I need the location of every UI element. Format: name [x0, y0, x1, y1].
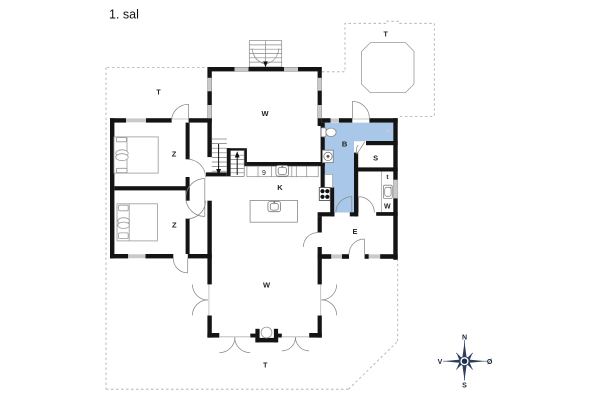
svg-text:S: S	[462, 383, 467, 390]
svg-text:W: W	[261, 109, 269, 118]
svg-text:W: W	[384, 204, 391, 211]
svg-text:T: T	[156, 90, 161, 97]
svg-text:9: 9	[262, 170, 266, 177]
svg-text:Z: Z	[172, 221, 177, 230]
svg-text:E: E	[352, 227, 357, 236]
svg-text:S: S	[373, 153, 378, 162]
svg-text:N: N	[462, 334, 467, 341]
svg-text:W: W	[263, 281, 271, 290]
svg-text:1. sal: 1. sal	[109, 8, 139, 22]
svg-text:T: T	[383, 31, 388, 38]
svg-text:V: V	[438, 359, 443, 366]
svg-text:K: K	[277, 183, 283, 192]
svg-text:B: B	[342, 139, 348, 148]
svg-text:T: T	[263, 362, 268, 369]
svg-text:Z: Z	[172, 150, 177, 159]
svg-text:Ø: Ø	[487, 359, 493, 366]
